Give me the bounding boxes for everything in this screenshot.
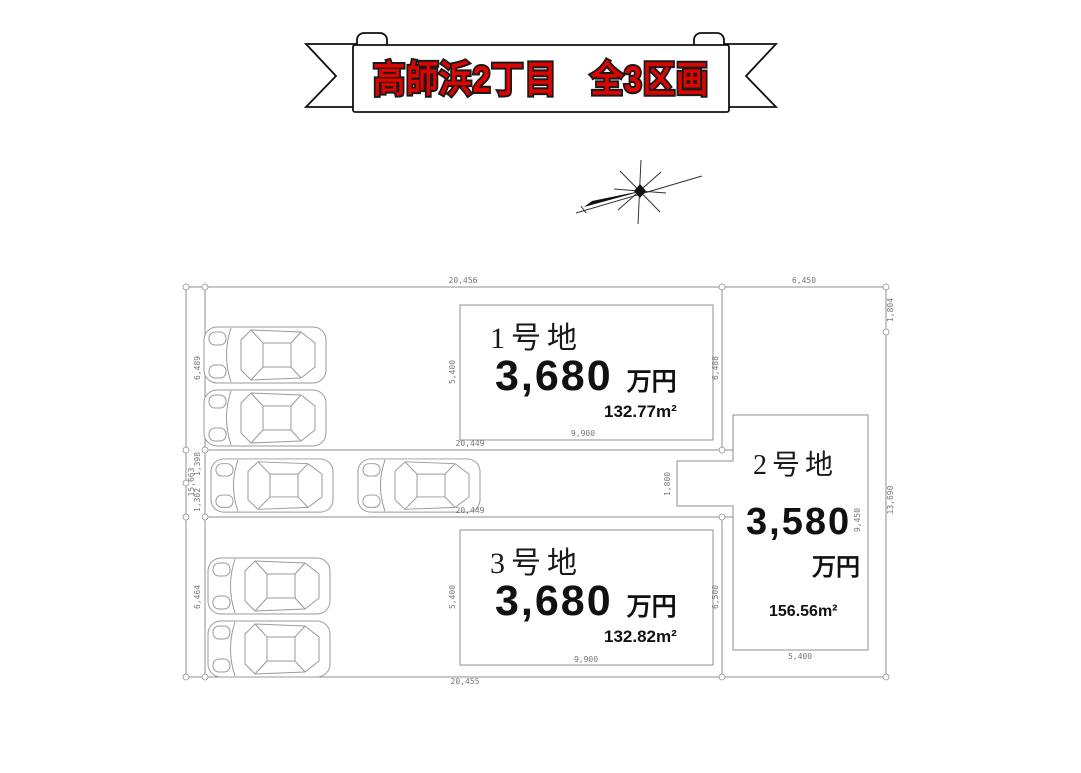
lot2-price-unit-row: 万円 <box>812 547 860 582</box>
dim-lot2-bottom: 5,400 <box>788 652 812 661</box>
dim-right-lower: 13,690 <box>886 485 895 514</box>
north-arrow-icon <box>576 160 702 224</box>
car-illustration <box>204 327 326 383</box>
car-illustration <box>211 459 333 512</box>
lot2-price: 3,580 <box>746 501 851 544</box>
lot2-info: 2号地 3,580 万円 156.56m² <box>733 415 868 650</box>
lot2-name: 2号地 <box>753 443 838 483</box>
lot1-name: 1号地 <box>490 313 583 357</box>
car-illustration <box>204 390 326 446</box>
dim-mid-upper: 20,449 <box>456 439 485 448</box>
dim-left-mid-a: 1,398 <box>193 452 202 476</box>
dim-right-upper: 1,804 <box>886 298 895 322</box>
lot3-name: 3号地 <box>490 538 583 582</box>
flyer-page: 高師浜2丁目 全3区画 <box>0 0 1081 773</box>
car-illustration <box>358 459 480 512</box>
lot3-area: 132.82m² <box>604 627 677 647</box>
lot1-price-value: 3,680 <box>495 352 613 400</box>
parking-cars <box>204 327 480 677</box>
banner-title: 高師浜2丁目 全3区画 <box>373 58 709 100</box>
dim-left-top: 6,489 <box>193 356 202 380</box>
lot2-price-value: 3,580 <box>746 501 851 543</box>
lot3-price-unit: 万円 <box>627 593 677 621</box>
lot3-info: 3号地 3,680万円 132.82m² <box>460 530 713 665</box>
dim-left-bottom: 6,464 <box>193 585 202 609</box>
car-illustration <box>208 558 330 614</box>
dim-left-mid-b: 1,302 <box>193 488 202 512</box>
dim-lot3-left: 5,400 <box>448 585 457 609</box>
lot1-area: 132.77m² <box>604 402 677 422</box>
dim-lot1-left: 5,400 <box>448 360 457 384</box>
lot3-price-value: 3,680 <box>495 577 613 625</box>
title-banner: 高師浜2丁目 全3区画 <box>306 33 776 112</box>
dim-top-right: 6,450 <box>792 276 816 285</box>
dim-top-main: 20,456 <box>449 276 478 285</box>
dim-bottom-outer: 20,455 <box>451 677 480 686</box>
lot3-price: 3,680万円 <box>495 577 677 626</box>
car-illustration <box>208 621 330 677</box>
lot1-price-unit: 万円 <box>627 368 677 396</box>
dim-notch: 1,800 <box>663 472 672 496</box>
lot1-price: 3,680万円 <box>495 352 677 401</box>
lot1-info: 1号地 3,680万円 132.77m² <box>460 305 713 440</box>
lot2-price-unit: 万円 <box>812 554 860 581</box>
lot2-area: 156.56m² <box>769 603 838 621</box>
dim-mid-lower: 20,449 <box>456 506 485 515</box>
